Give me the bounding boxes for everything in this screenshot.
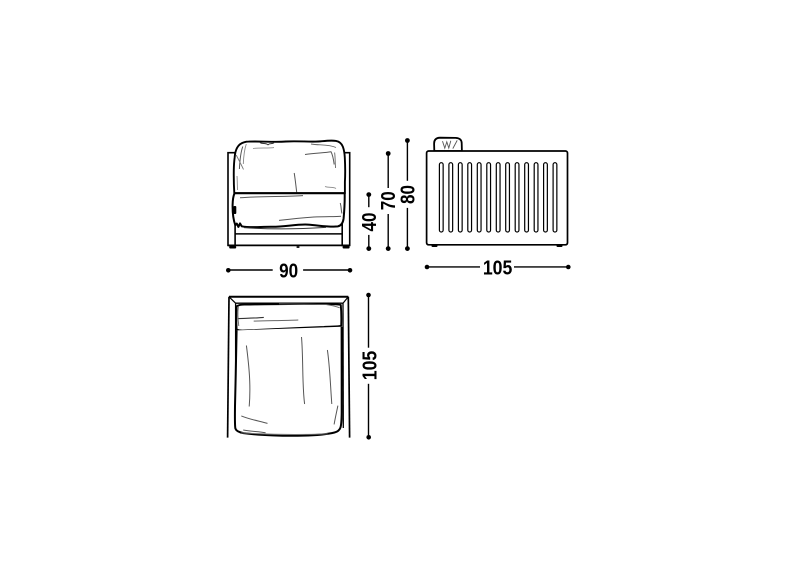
- svg-text:40: 40: [359, 213, 381, 232]
- svg-text:105: 105: [360, 351, 382, 381]
- svg-text:90: 90: [279, 260, 298, 282]
- svg-text:105: 105: [483, 257, 513, 279]
- svg-text:80: 80: [397, 185, 419, 204]
